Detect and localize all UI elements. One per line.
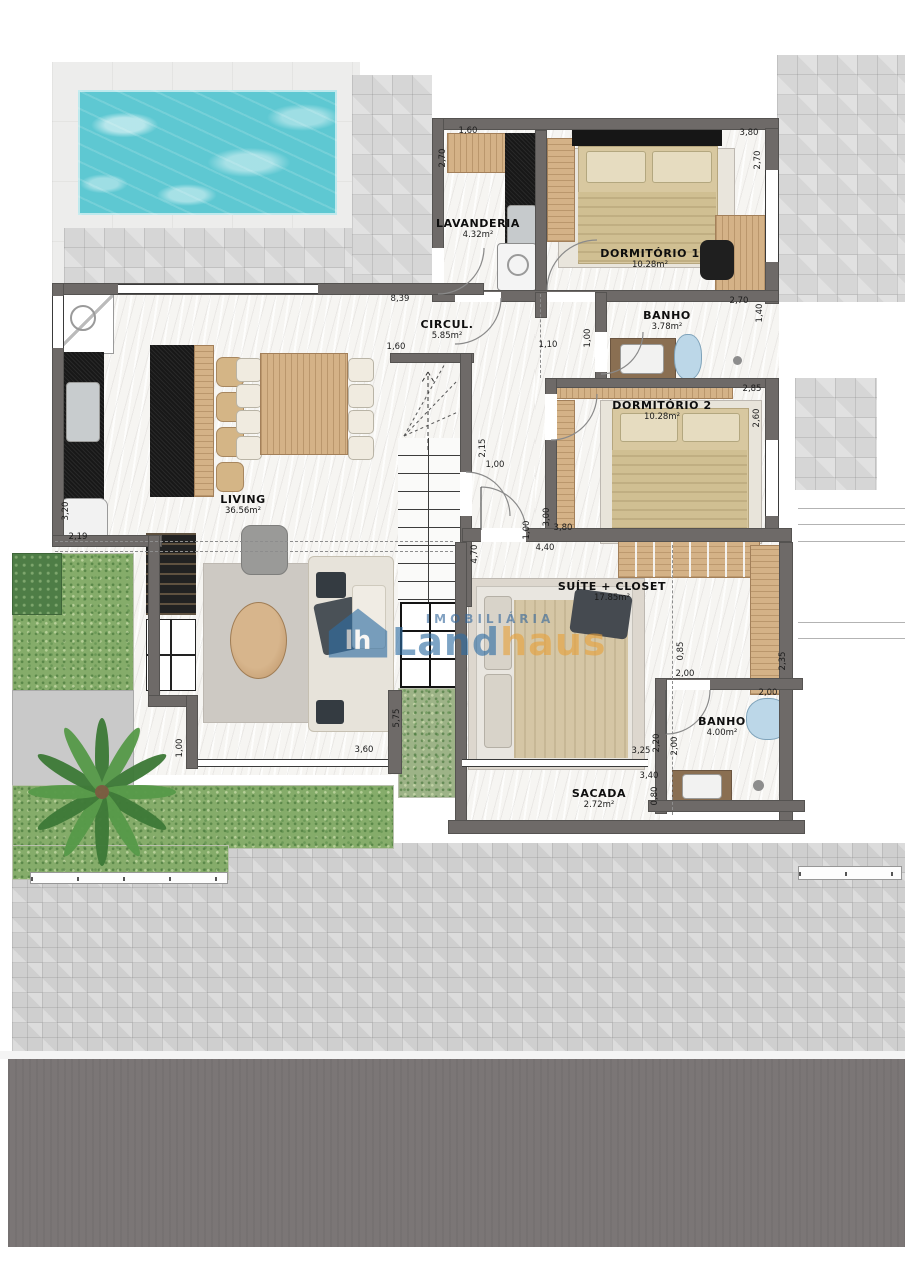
room-area: 17.85m² [558,593,666,603]
room-name: DORMITÓRIO 1 [600,248,699,261]
landhaus-watermark: lh IMOBILIÁRIA Landhaus [326,596,596,670]
room-name: SACADA [572,788,626,801]
logo-brand-land: Land [392,620,500,664]
room-area: 36.56m² [220,506,266,516]
room-area: 10.28m² [612,412,711,422]
floor-plan-canvas: lh IMOBILIÁRIA Landhaus LAVANDERIA 4.32m… [0,0,905,1280]
room-name: LAVANDERIA [436,218,520,231]
room-name: BANHO [698,716,746,729]
room-name: LIVING [220,494,266,507]
room-area: 3.78m² [643,322,691,332]
logo-brand-haus: haus [500,620,606,664]
room-name: DORMITÓRIO 2 [612,400,711,413]
svg-text:lh: lh [345,625,372,655]
section-line [672,545,674,815]
room-name: BANHO [643,310,691,323]
room-label-living: LIVING 36.56m² [220,494,266,516]
room-label-dormitorio-2: DORMITÓRIO 2 10.28m² [612,400,711,422]
room-area: 4.00m² [698,728,746,738]
room-area: 10.28m² [600,260,699,270]
logo-brand: Landhaus [392,620,607,664]
room-area: 4.32m² [436,230,520,240]
room-label-suite-closet: SUÍTE + CLOSET 17.85m² [558,581,666,603]
room-name: CIRCUL. [420,319,473,332]
section-line [540,294,542,378]
room-label-banho-1: BANHO 3.78m² [643,310,691,332]
room-label-dormitorio-1: DORMITÓRIO 1 10.28m² [600,248,699,270]
room-label-sacada: SACADA 2.72m² [572,788,626,810]
room-label-circulacao: CIRCUL. 5.85m² [420,319,473,341]
room-label-banho-2: BANHO 4.00m² [698,716,746,738]
section-line [55,541,453,543]
room-area: 2.72m² [572,800,626,810]
landhaus-house-icon: lh [326,604,390,662]
room-name: SUÍTE + CLOSET [558,581,666,594]
room-area: 5.85m² [420,331,473,341]
section-line [55,551,453,553]
room-label-lavanderia: LAVANDERIA 4.32m² [436,218,520,240]
